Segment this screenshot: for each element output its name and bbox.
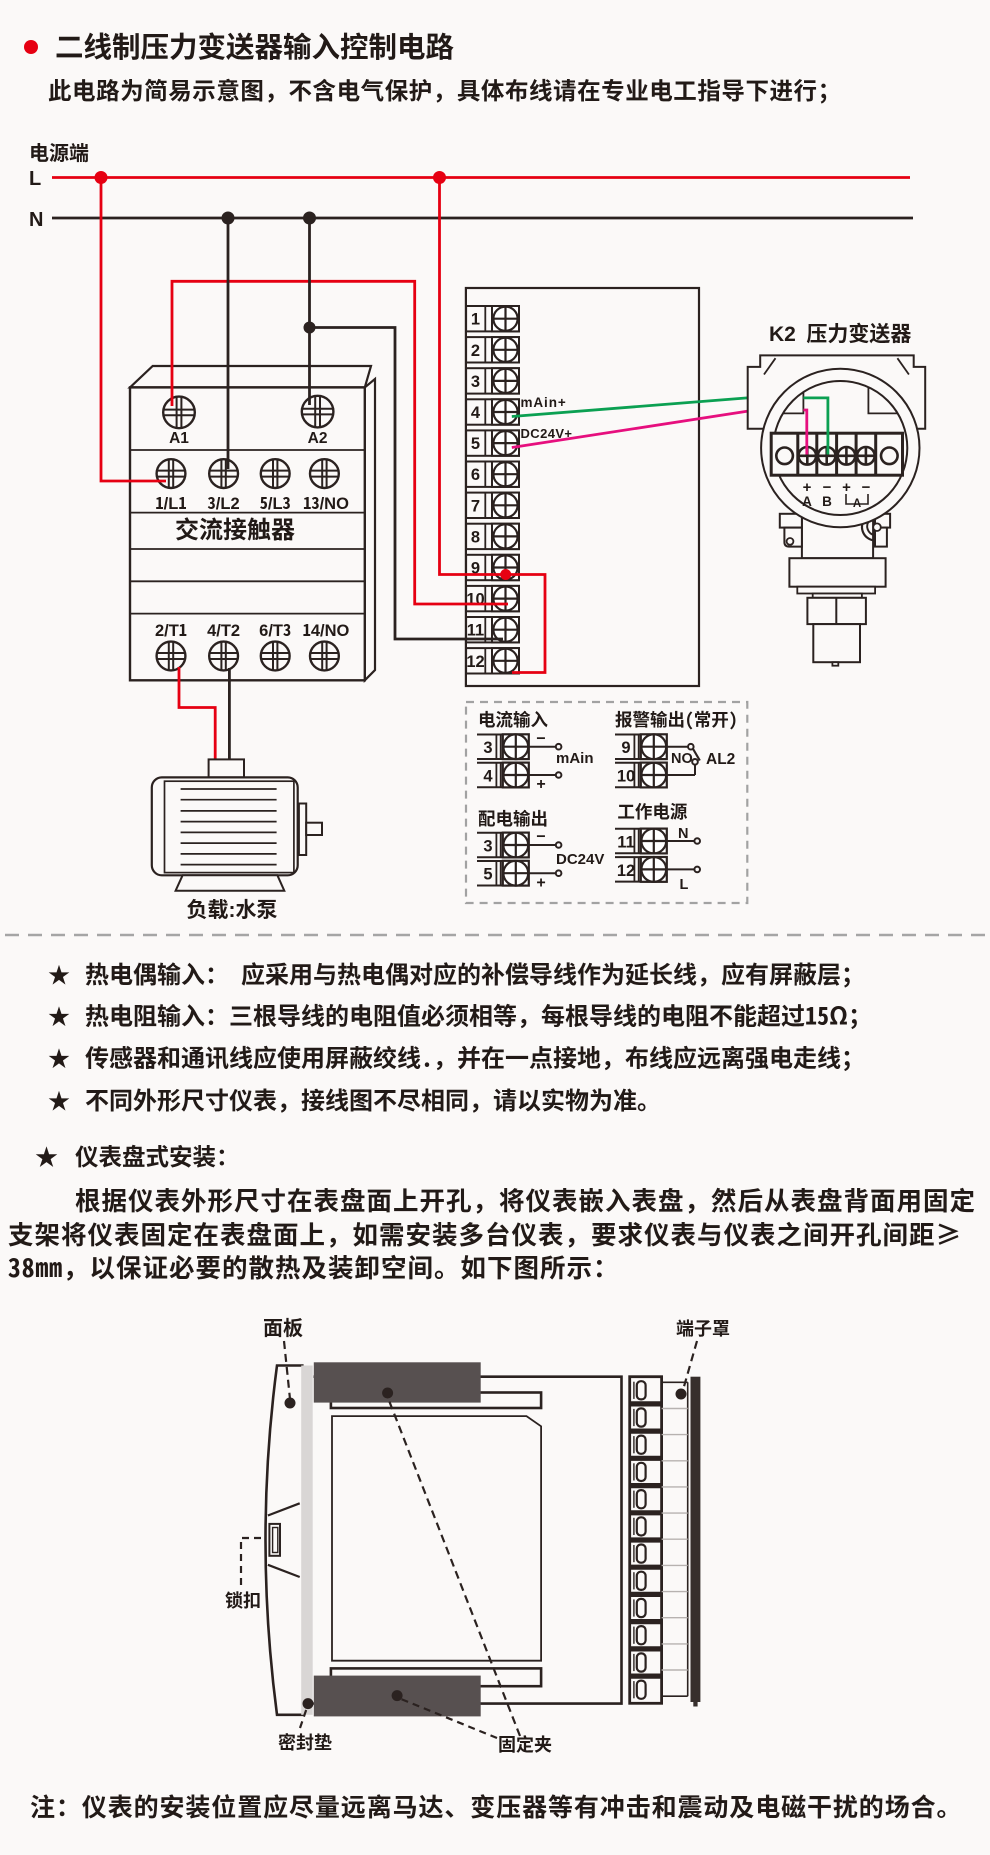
svg-text:报警输出(常开): 报警输出(常开) xyxy=(615,707,738,732)
svg-text:4: 4 xyxy=(471,404,481,422)
svg-text:K2 压力变送器: K2 压力变送器 xyxy=(769,318,911,348)
svg-text:A2: A2 xyxy=(308,430,328,447)
svg-text:2/T1: 2/T1 xyxy=(155,617,187,641)
svg-text:+: + xyxy=(536,875,545,892)
svg-text:−: − xyxy=(536,731,545,748)
svg-text:mAin+: mAin+ xyxy=(521,395,567,410)
svg-text:电源端: 电源端 xyxy=(29,137,89,166)
svg-text:AL2: AL2 xyxy=(706,751,735,768)
svg-text:根据仪表外形尺寸在表盘面上开孔，将仪表嵌入表盘，然后从表盘背: 根据仪表外形尺寸在表盘面上开孔，将仪表嵌入表盘，然后从表盘背面用固定 xyxy=(75,1181,976,1218)
svg-text:5: 5 xyxy=(483,866,492,884)
svg-text:L: L xyxy=(29,168,41,190)
svg-text:★: ★ xyxy=(48,1042,70,1074)
svg-text:7: 7 xyxy=(471,497,480,515)
svg-text:B: B xyxy=(822,494,832,509)
svg-text:传感器和通讯线应使用屏蔽绞线.，并在一点接地，布线应远离强电: 传感器和通讯线应使用屏蔽绞线.，并在一点接地，布线应远离强电走线； xyxy=(85,1039,865,1074)
svg-text:交流接触器: 交流接触器 xyxy=(175,510,295,545)
svg-text:密封垫: 密封垫 xyxy=(278,1729,332,1755)
svg-text:L: L xyxy=(680,877,689,893)
svg-text:4/T2: 4/T2 xyxy=(207,617,240,641)
svg-text:A: A xyxy=(802,494,812,509)
svg-text:9: 9 xyxy=(621,739,630,757)
svg-text:N: N xyxy=(678,826,688,842)
svg-text:工作电源: 工作电源 xyxy=(617,799,687,824)
svg-text:DC24V: DC24V xyxy=(556,851,604,868)
svg-text:13/NO: 13/NO xyxy=(303,490,349,514)
svg-text:11: 11 xyxy=(467,622,484,640)
svg-text:mAin: mAin xyxy=(556,750,594,767)
svg-text:N: N xyxy=(29,209,43,231)
svg-text:配电输出: 配电输出 xyxy=(478,806,548,831)
svg-text:−: − xyxy=(862,476,871,497)
svg-text:3: 3 xyxy=(471,373,480,391)
svg-text:★: ★ xyxy=(48,1000,70,1032)
svg-text:12: 12 xyxy=(617,862,635,880)
svg-text:A: A xyxy=(853,498,861,510)
svg-text:+: + xyxy=(536,776,545,793)
svg-text:电流输入: 电流输入 xyxy=(478,707,548,732)
svg-text:4: 4 xyxy=(483,768,493,786)
svg-text:11: 11 xyxy=(617,834,634,852)
svg-text:仪表盘式安装：: 仪表盘式安装： xyxy=(75,1138,240,1172)
svg-text:10: 10 xyxy=(617,768,635,786)
svg-text:注：仪表的安装位置应尽量远离马达、变压器等有冲击和震动及电磁: 注：仪表的安装位置应尽量远离马达、变压器等有冲击和震动及电磁干扰的场合。 xyxy=(30,1788,962,1824)
svg-text:A1: A1 xyxy=(169,430,189,447)
svg-text:6: 6 xyxy=(471,466,480,484)
svg-text:支架将仪表固定在表盘面上，如需安装多台仪表，要求仪表与仪表之: 支架将仪表固定在表盘面上，如需安装多台仪表，要求仪表与仪表之间开孔间距≥ xyxy=(8,1215,962,1252)
svg-text:热电偶输入： 应采用与热电偶对应的补偿导线作为延长线，应有屏: 热电偶输入： 应采用与热电偶对应的补偿导线作为延长线，应有屏蔽层； xyxy=(85,955,865,990)
svg-text:−: − xyxy=(536,829,545,846)
svg-text:★: ★ xyxy=(35,1138,58,1172)
svg-text:3: 3 xyxy=(483,739,492,757)
svg-text:负载:水泵: 负载:水泵 xyxy=(187,894,278,924)
svg-text:此电路为简易示意图，不含电气保护，具体布线请在专业电工指导下: 此电路为简易示意图，不含电气保护，具体布线请在专业电工指导下进行； xyxy=(48,72,842,106)
svg-text:3: 3 xyxy=(483,838,492,856)
svg-text:★: ★ xyxy=(48,958,70,990)
svg-text:5: 5 xyxy=(471,435,480,453)
svg-text:端子罩: 端子罩 xyxy=(676,1315,730,1341)
svg-text:14/NO: 14/NO xyxy=(303,617,350,641)
svg-text:★: ★ xyxy=(48,1084,70,1116)
svg-text:10: 10 xyxy=(466,591,484,609)
svg-text:2: 2 xyxy=(471,342,480,360)
svg-text:固定夹: 固定夹 xyxy=(498,1731,552,1757)
svg-text:+: + xyxy=(842,476,851,497)
svg-text:NO: NO xyxy=(671,751,693,767)
svg-text:38mm，以保证必要的散热及装卸空间。如下图所示：: 38mm，以保证必要的散热及装卸空间。如下图所示： xyxy=(8,1248,620,1285)
svg-text:12: 12 xyxy=(466,653,484,671)
svg-text:二线制压力变送器输入控制电路: 二线制压力变送器输入控制电路 xyxy=(55,25,455,66)
svg-text:8: 8 xyxy=(471,528,480,546)
svg-text:面板: 面板 xyxy=(263,1312,303,1341)
svg-text:锁扣: 锁扣 xyxy=(225,1587,261,1613)
svg-text:热电阻输入：三根导线的电阻值必须相等，每根导线的电阻不能超过: 热电阻输入：三根导线的电阻值必须相等，每根导线的电阻不能超过15Ω； xyxy=(85,997,872,1032)
svg-text:6/T3: 6/T3 xyxy=(259,617,291,641)
svg-text:1: 1 xyxy=(471,311,480,329)
svg-text:不同外形尺寸仪表，接线图不尽相同，请以实物为准。: 不同外形尺寸仪表，接线图不尽相同，请以实物为准。 xyxy=(85,1081,661,1116)
